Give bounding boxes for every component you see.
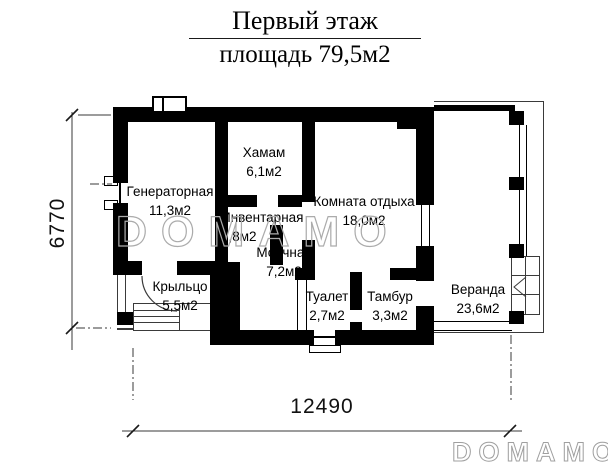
plan-title: Первый этаж (189, 6, 421, 38)
room-label-hamam: Хамам 6,1м2 (243, 143, 286, 181)
room-name: Веранда (451, 280, 505, 299)
room-area: 6,1м2 (243, 162, 286, 181)
room-label-vestibule: Тамбур 3,3м2 (367, 287, 413, 325)
dimension-vertical-6770: 6770 (46, 198, 70, 249)
plan-title-block: Первый этаж площадь 79,5м2 (189, 6, 421, 69)
room-area: 2,7м2 (306, 306, 349, 325)
room-label-toilet: Туалет 2,7м2 (306, 287, 349, 325)
room-area: 5,5м2 (152, 296, 207, 315)
room-area: 3,3м2 (367, 306, 413, 325)
room-name: Генераторная (127, 182, 214, 201)
room-name: Туалет (306, 287, 349, 306)
room-name: Хамам (243, 143, 286, 162)
watermark-center: DOMAMO (116, 208, 401, 257)
room-area: 23,6м2 (451, 299, 505, 318)
floor-plan-page: Первый этаж площадь 79,5м2 (0, 0, 608, 470)
dimension-horizontal-12490: 12490 (290, 395, 353, 419)
room-label-porch: Крыльцо 5,5м2 (152, 277, 207, 315)
watermark-corner-logo: DOMAMO (452, 437, 608, 468)
plan-area-subtitle: площадь 79,5м2 (189, 39, 421, 69)
room-area: 7,2м2 (256, 262, 311, 281)
stair-direction-mark (514, 277, 526, 297)
room-name: Тамбур (367, 287, 413, 306)
room-label-veranda: Веранда 23,6м2 (451, 280, 505, 318)
room-name: Крыльцо (152, 277, 207, 296)
